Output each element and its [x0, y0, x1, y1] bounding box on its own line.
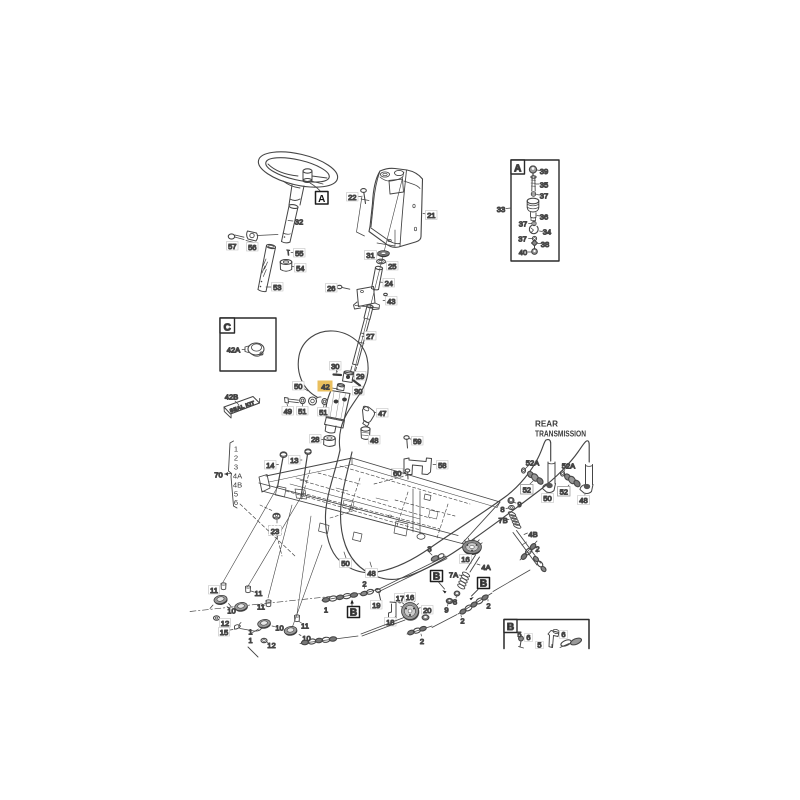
svg-text:37: 37 — [518, 235, 526, 244]
svg-text:2: 2 — [486, 602, 490, 611]
svg-text:12: 12 — [267, 641, 275, 650]
svg-text:14: 14 — [266, 461, 274, 470]
svg-text:42A: 42A — [227, 346, 241, 355]
svg-text:3: 3 — [234, 463, 238, 472]
svg-text:40: 40 — [519, 248, 527, 257]
svg-text:5: 5 — [537, 641, 541, 650]
svg-text:57: 57 — [228, 242, 236, 251]
svg-text:51: 51 — [298, 407, 306, 416]
svg-text:25: 25 — [388, 262, 396, 271]
svg-text:38: 38 — [541, 240, 549, 249]
svg-text:16: 16 — [406, 593, 414, 602]
svg-text:55: 55 — [295, 249, 303, 258]
svg-text:B: B — [507, 622, 514, 633]
svg-text:24: 24 — [385, 279, 393, 288]
svg-text:11: 11 — [257, 603, 265, 612]
svg-text:A: A — [514, 164, 521, 175]
svg-text:26: 26 — [327, 284, 335, 293]
svg-text:31: 31 — [366, 251, 374, 260]
svg-text:52A: 52A — [562, 462, 576, 471]
svg-text:33: 33 — [497, 205, 505, 214]
svg-text:2: 2 — [362, 580, 366, 589]
svg-text:17: 17 — [396, 594, 404, 603]
svg-text:4A: 4A — [233, 472, 243, 481]
svg-text:48: 48 — [579, 496, 587, 505]
svg-text:8: 8 — [500, 505, 504, 514]
svg-text:59: 59 — [413, 437, 421, 446]
svg-text:48: 48 — [370, 436, 378, 445]
svg-text:2: 2 — [420, 637, 424, 646]
svg-text:4B: 4B — [528, 530, 537, 539]
svg-text:11: 11 — [301, 622, 309, 631]
svg-text:49: 49 — [284, 407, 292, 416]
svg-text:50: 50 — [341, 559, 349, 568]
svg-text:6: 6 — [526, 633, 530, 642]
svg-text:6: 6 — [234, 498, 238, 507]
svg-text:30: 30 — [331, 362, 339, 371]
svg-text:53: 53 — [273, 283, 281, 292]
svg-text:16: 16 — [461, 555, 469, 564]
svg-text:37: 37 — [540, 192, 548, 201]
svg-text:50: 50 — [294, 382, 302, 391]
svg-text:56: 56 — [248, 243, 256, 252]
svg-text:7B: 7B — [498, 516, 507, 525]
svg-text:C: C — [224, 323, 231, 334]
svg-text:B: B — [433, 572, 440, 583]
svg-text:11: 11 — [210, 586, 218, 595]
svg-text:48: 48 — [367, 569, 375, 578]
svg-text:32: 32 — [295, 218, 303, 227]
svg-text:REAR: REAR — [535, 420, 558, 429]
svg-text:10: 10 — [275, 624, 283, 633]
svg-text:37: 37 — [519, 220, 527, 229]
svg-text:50: 50 — [543, 494, 551, 503]
svg-text:47: 47 — [378, 409, 386, 418]
svg-text:34: 34 — [543, 228, 551, 237]
svg-text:52: 52 — [523, 485, 531, 494]
svg-text:35: 35 — [540, 181, 548, 190]
svg-text:1: 1 — [324, 606, 328, 615]
svg-text:15: 15 — [220, 628, 228, 637]
svg-text:7A: 7A — [449, 571, 459, 580]
svg-text:19: 19 — [372, 601, 380, 610]
svg-text:13: 13 — [290, 456, 298, 465]
svg-text:58: 58 — [438, 461, 446, 470]
svg-text:2: 2 — [460, 617, 464, 626]
svg-text:9: 9 — [517, 500, 521, 509]
svg-text:4A: 4A — [481, 563, 491, 572]
svg-text:70: 70 — [214, 471, 222, 480]
svg-text:B: B — [480, 579, 487, 590]
svg-text:B: B — [350, 608, 357, 619]
svg-text:12: 12 — [221, 619, 229, 628]
svg-text:1: 1 — [248, 636, 252, 645]
svg-text:5: 5 — [517, 630, 521, 639]
svg-text:9: 9 — [444, 606, 448, 615]
svg-text:29: 29 — [356, 372, 364, 381]
svg-text:8: 8 — [453, 598, 457, 607]
svg-text:11: 11 — [255, 589, 263, 598]
svg-text:28: 28 — [311, 435, 319, 444]
svg-text:6: 6 — [561, 630, 565, 639]
svg-text:51: 51 — [319, 408, 327, 417]
svg-text:21: 21 — [427, 211, 435, 220]
svg-text:36: 36 — [540, 213, 548, 222]
svg-text:1: 1 — [234, 445, 238, 454]
svg-text:22: 22 — [348, 193, 356, 202]
svg-text:52A: 52A — [526, 459, 540, 468]
svg-text:42: 42 — [321, 383, 329, 392]
svg-text:TRANSMISSION: TRANSMISSION — [535, 430, 586, 439]
svg-text:27: 27 — [366, 332, 374, 341]
svg-text:42B: 42B — [225, 393, 239, 402]
svg-text:2: 2 — [234, 454, 238, 463]
svg-text:4B: 4B — [233, 481, 242, 490]
svg-text:54: 54 — [296, 264, 304, 273]
svg-text:43: 43 — [387, 297, 395, 306]
svg-text:A: A — [318, 194, 325, 205]
svg-text:3: 3 — [427, 545, 431, 554]
svg-text:39: 39 — [540, 167, 548, 176]
svg-text:52: 52 — [560, 487, 568, 496]
svg-text:20: 20 — [423, 606, 431, 615]
